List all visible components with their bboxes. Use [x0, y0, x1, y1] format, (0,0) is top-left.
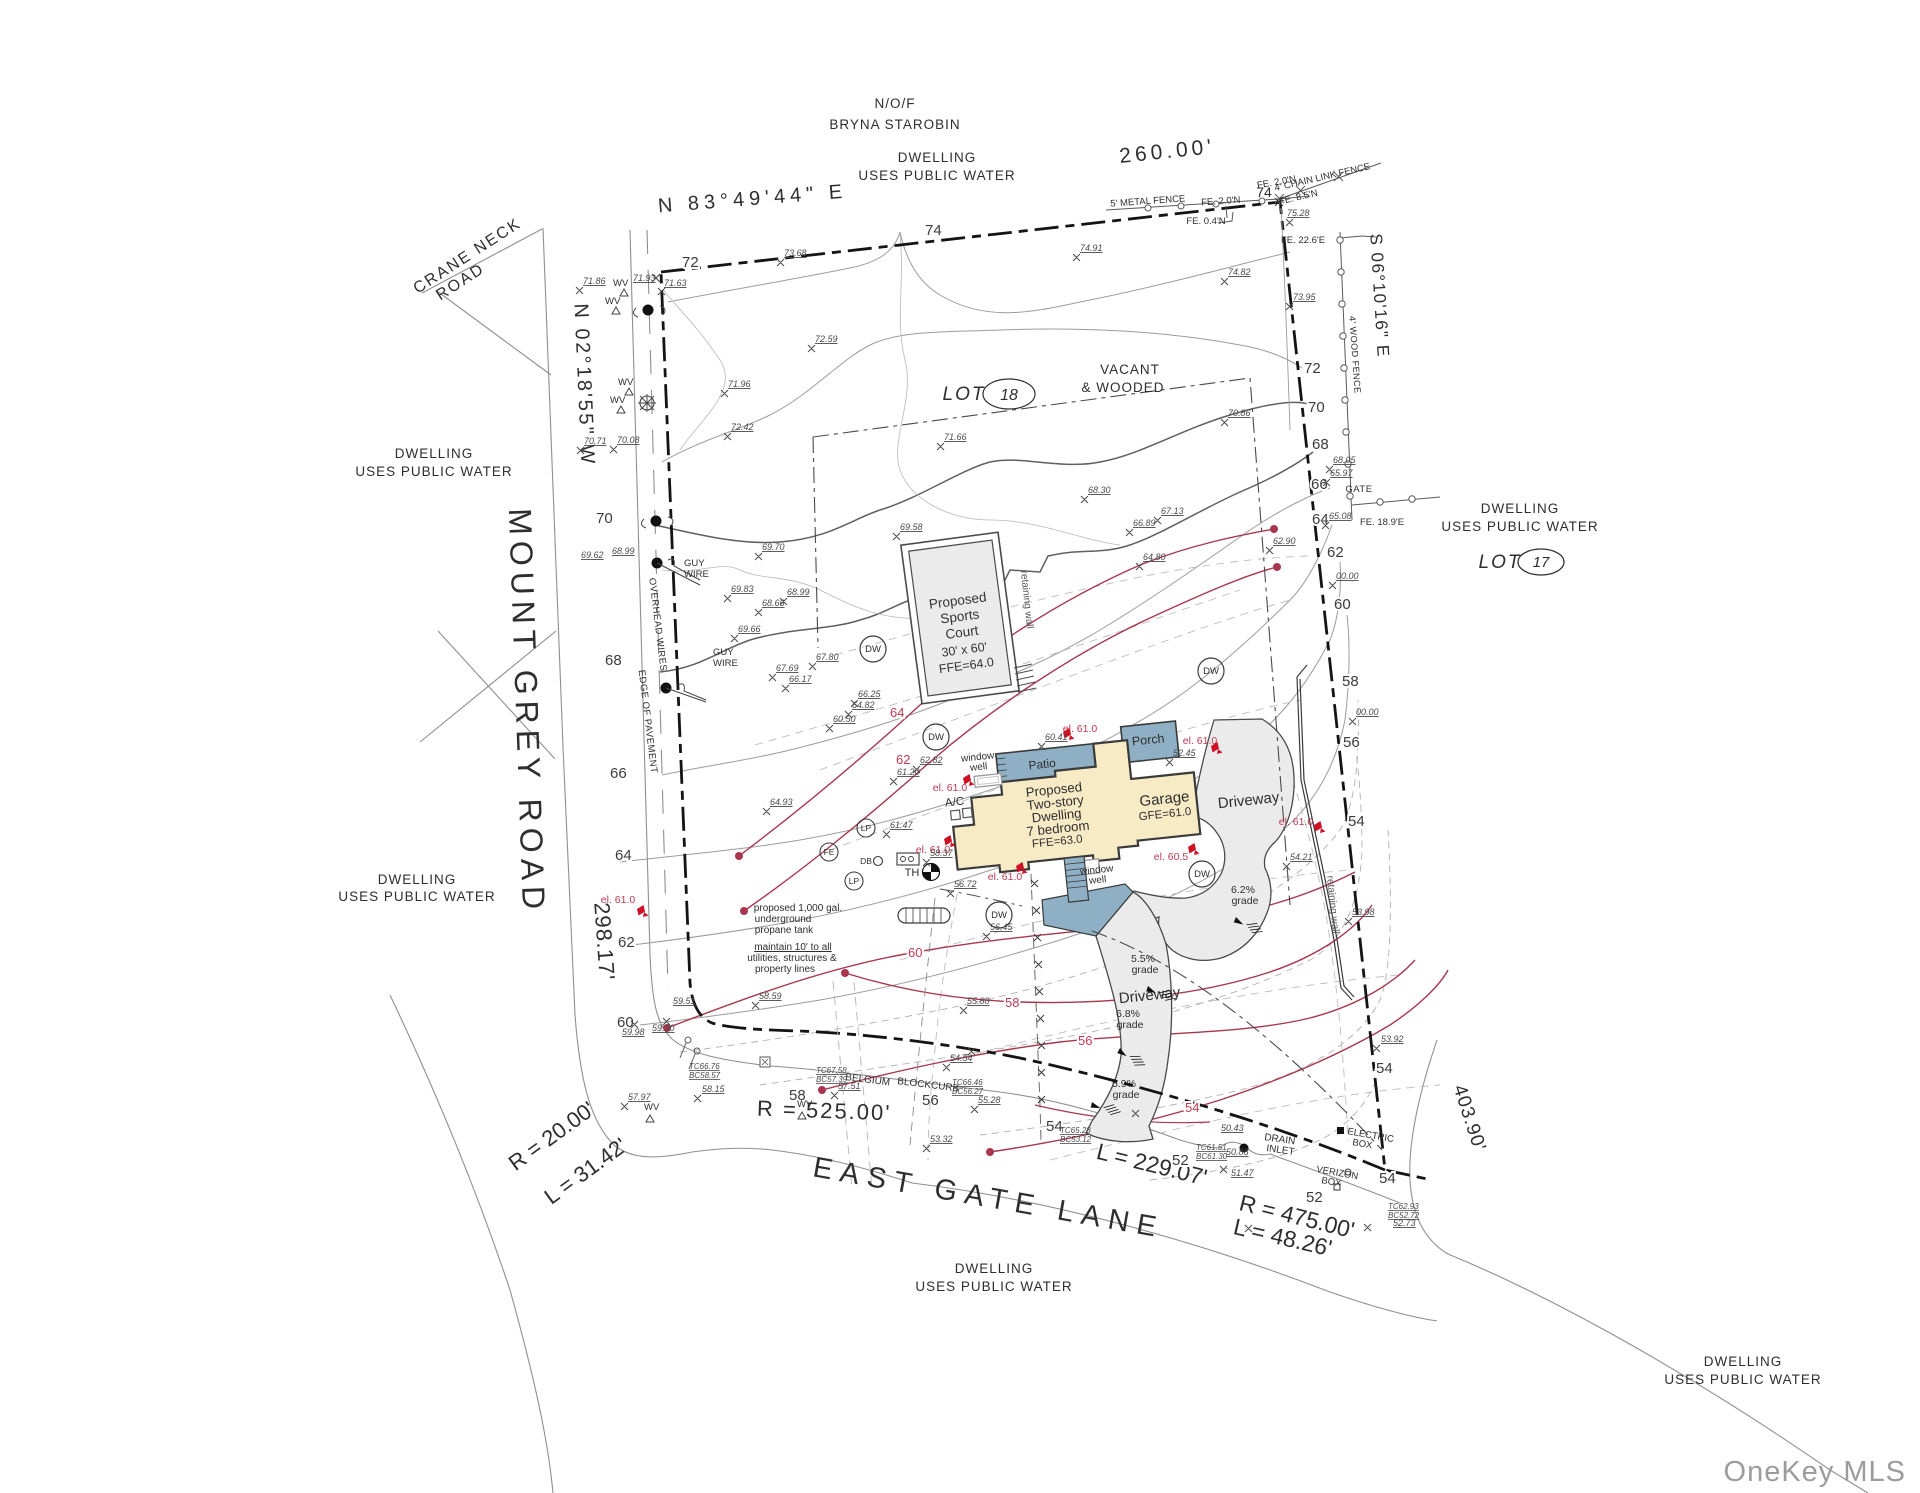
svg-text:53.92: 53.92 [1381, 1034, 1404, 1044]
svg-text:GATE: GATE [1345, 484, 1372, 495]
svg-text:TC66.46: TC66.46 [952, 1078, 983, 1087]
svg-text:grade: grade [1232, 895, 1259, 907]
svg-text:WV: WV [610, 395, 626, 406]
svg-text:64.93: 64.93 [770, 797, 793, 807]
svg-text:el. 61.0: el. 61.0 [988, 871, 1023, 883]
svg-text:USES PUBLIC WATER: USES PUBLIC WATER [338, 889, 495, 904]
svg-text:64: 64 [615, 847, 632, 864]
svg-text:LOT: LOT [1479, 552, 1522, 573]
svg-text:GUY: GUY [684, 558, 705, 569]
svg-text:FE: FE [824, 847, 835, 857]
svg-text:68.30: 68.30 [1088, 485, 1111, 495]
svg-text:USES PUBLIC WATER: USES PUBLIC WATER [915, 1279, 1072, 1294]
svg-text:62.90: 62.90 [1273, 536, 1296, 546]
svg-text:DWELLING: DWELLING [395, 446, 474, 461]
svg-text:58: 58 [789, 1087, 806, 1104]
svg-text:grade: grade [1113, 1089, 1140, 1101]
svg-text:60: 60 [908, 945, 922, 960]
svg-text:62: 62 [618, 934, 635, 951]
svg-text:68.99: 68.99 [612, 546, 635, 556]
svg-text:68.05: 68.05 [1333, 455, 1357, 465]
svg-text:58.59: 58.59 [759, 991, 782, 1001]
svg-text:el. 60.5: el. 60.5 [1154, 851, 1189, 863]
svg-text:DWELLING: DWELLING [955, 1261, 1034, 1276]
svg-text:58: 58 [1005, 995, 1019, 1010]
svg-text:72.59: 72.59 [815, 334, 838, 344]
svg-text:USES PUBLIC WATER: USES PUBLIC WATER [1664, 1372, 1821, 1387]
svg-text:FE. 0.4'N: FE. 0.4'N [1186, 216, 1225, 227]
svg-text:WV: WV [605, 296, 621, 307]
svg-text:71.66: 71.66 [944, 432, 967, 442]
svg-text:66.89: 66.89 [1133, 518, 1156, 528]
svg-text:65.08: 65.08 [1329, 511, 1352, 521]
svg-text:68: 68 [1312, 436, 1329, 453]
svg-text:DW: DW [865, 644, 881, 655]
svg-text:proposed 1,000 gal.: proposed 1,000 gal. [754, 903, 842, 914]
svg-text:18: 18 [1000, 387, 1018, 404]
svg-text:DW: DW [1203, 666, 1219, 677]
svg-text:TC67.58: TC67.58 [816, 1066, 847, 1075]
svg-text:R = 525.00': R = 525.00' [757, 1096, 892, 1126]
svg-text:66.17: 66.17 [789, 674, 813, 684]
svg-text:LOT: LOT [943, 384, 986, 405]
svg-text:FE. 22.6'E: FE. 22.6'E [1281, 235, 1325, 246]
svg-text:USES PUBLIC WATER: USES PUBLIC WATER [858, 168, 1015, 183]
svg-text:68: 68 [605, 652, 622, 669]
svg-text:well: well [969, 761, 988, 774]
svg-text:DWELLING: DWELLING [1481, 501, 1560, 516]
svg-text:51.47: 51.47 [1231, 1168, 1255, 1178]
svg-text:WIRE: WIRE [713, 658, 738, 669]
svg-text:58: 58 [1342, 673, 1359, 690]
svg-text:56: 56 [1343, 734, 1360, 751]
svg-text:69.70: 69.70 [762, 542, 785, 552]
svg-text:propane tank: propane tank [755, 925, 814, 936]
svg-text:A/C: A/C [945, 796, 965, 810]
svg-text:74.91: 74.91 [1080, 243, 1103, 253]
svg-text:70.71: 70.71 [584, 436, 607, 446]
svg-text:69.66: 69.66 [738, 624, 761, 634]
svg-text:73.68: 73.68 [784, 248, 807, 258]
svg-text:58.37: 58.37 [930, 848, 954, 858]
svg-text:TC62.93: TC62.93 [1388, 1202, 1419, 1211]
svg-text:70.08: 70.08 [617, 435, 640, 445]
svg-text:DW: DW [928, 732, 944, 743]
svg-text:WV: WV [618, 377, 634, 388]
svg-text:BC57.39: BC57.39 [816, 1075, 848, 1084]
svg-text:69.83: 69.83 [731, 584, 754, 594]
svg-text:LP: LP [861, 823, 872, 833]
svg-text:& WOODED: & WOODED [1081, 380, 1164, 395]
svg-text:55.28: 55.28 [978, 1095, 1001, 1105]
svg-text:maintain 10' to all: maintain 10' to all [754, 942, 832, 953]
svg-text:BC56.27: BC56.27 [952, 1087, 984, 1096]
svg-text:utilities, structures &: utilities, structures & [747, 953, 837, 964]
svg-text:USES PUBLIC WATER: USES PUBLIC WATER [355, 464, 512, 479]
svg-text:DB: DB [860, 856, 872, 866]
svg-text:property lines: property lines [755, 964, 815, 975]
svg-text:OneKey MLS: OneKey MLS [1724, 1456, 1906, 1488]
svg-text:TC65.28: TC65.28 [1060, 1126, 1091, 1135]
svg-text:GUY: GUY [713, 647, 734, 658]
svg-text:el. 61.0: el. 61.0 [1183, 735, 1218, 747]
svg-text:74: 74 [1256, 184, 1272, 200]
svg-text:well: well [1088, 874, 1107, 887]
svg-text:75.28: 75.28 [1287, 208, 1310, 218]
svg-text:72.42: 72.42 [731, 422, 754, 432]
svg-text:LP: LP [849, 876, 860, 886]
svg-text:BRYNA STAROBIN: BRYNA STAROBIN [829, 117, 960, 132]
svg-text:DWELLING: DWELLING [378, 872, 457, 887]
svg-text:BC52.72: BC52.72 [1388, 1211, 1420, 1220]
svg-text:54.21: 54.21 [1290, 852, 1313, 862]
svg-text:DWELLING: DWELLING [1704, 1354, 1783, 1369]
svg-text:72: 72 [1304, 360, 1321, 377]
svg-text:72: 72 [682, 254, 699, 271]
svg-text:56: 56 [1078, 1033, 1092, 1048]
svg-text:17: 17 [1533, 554, 1550, 571]
svg-text:69.58: 69.58 [900, 522, 923, 532]
svg-text:60.50: 60.50 [833, 714, 856, 724]
svg-text:DWELLING: DWELLING [898, 150, 977, 165]
svg-text:50.43: 50.43 [1221, 1123, 1244, 1133]
svg-text:grade: grade [1132, 964, 1159, 976]
svg-text:N/O/F: N/O/F [875, 96, 916, 111]
svg-text:71.86: 71.86 [583, 276, 606, 286]
svg-text:62: 62 [1327, 544, 1344, 561]
svg-text:64: 64 [890, 705, 904, 720]
svg-text:62.82: 62.82 [920, 755, 943, 765]
svg-text:USES PUBLIC WATER: USES PUBLIC WATER [1441, 519, 1598, 534]
svg-text:DW: DW [1194, 869, 1210, 880]
svg-text:73.95: 73.95 [1293, 292, 1317, 302]
svg-text:60.41: 60.41 [1045, 732, 1068, 742]
svg-text:61.47: 61.47 [890, 820, 914, 830]
svg-text:TC66.76: TC66.76 [689, 1062, 720, 1071]
svg-text:71.96: 71.96 [728, 379, 751, 389]
svg-text:Patio: Patio [1028, 756, 1057, 773]
svg-text:53.32: 53.32 [930, 1134, 953, 1144]
svg-text:58.15: 58.15 [702, 1084, 726, 1094]
svg-text:00.00: 00.00 [1336, 571, 1359, 581]
svg-text:VACANT: VACANT [1100, 362, 1160, 377]
svg-text:underground: underground [755, 914, 812, 925]
svg-text:64.80: 64.80 [1143, 552, 1166, 562]
svg-text:71.93: 71.93 [633, 273, 656, 283]
svg-text:el. 61.0: el. 61.0 [1279, 816, 1314, 828]
svg-text:71.63: 71.63 [664, 278, 687, 288]
svg-text:WV: WV [613, 278, 629, 289]
svg-text:57.97: 57.97 [628, 1092, 652, 1102]
svg-text:53.98: 53.98 [1352, 907, 1375, 917]
svg-text:52.45: 52.45 [1173, 748, 1197, 758]
svg-text:74.82: 74.82 [1228, 267, 1251, 277]
svg-text:69.62: 69.62 [581, 550, 604, 560]
svg-text:59.51: 59.51 [673, 996, 696, 1006]
svg-text:54: 54 [1348, 813, 1365, 830]
svg-text:68.99: 68.99 [787, 587, 810, 597]
svg-text:56.72: 56.72 [954, 879, 977, 889]
svg-text:62: 62 [896, 752, 910, 767]
svg-text:TC61.51: TC61.51 [1196, 1143, 1227, 1152]
svg-text:50.86: 50.86 [1226, 1147, 1249, 1157]
svg-text:52: 52 [1172, 1152, 1189, 1169]
svg-text:WIRE: WIRE [684, 569, 709, 580]
svg-text:59.98: 59.98 [622, 1027, 645, 1037]
svg-text:66.25: 66.25 [858, 689, 882, 699]
svg-text:WV: WV [644, 1102, 660, 1113]
svg-text:BC53.12: BC53.12 [1060, 1135, 1092, 1144]
svg-text:00.00: 00.00 [1356, 707, 1379, 717]
svg-text:67.80: 67.80 [816, 652, 839, 662]
svg-text:DW: DW [991, 910, 1007, 921]
svg-text:BC61.30: BC61.30 [1196, 1152, 1228, 1161]
svg-text:54: 54 [1379, 1170, 1396, 1187]
svg-text:70.86: 70.86 [1228, 408, 1251, 418]
svg-text:55.88: 55.88 [967, 996, 990, 1006]
svg-text:FE. 18.9'E: FE. 18.9'E [1360, 517, 1404, 528]
svg-text:70: 70 [1308, 399, 1325, 416]
svg-text:66: 66 [610, 765, 627, 782]
svg-text:el. 61.0: el. 61.0 [933, 782, 968, 794]
svg-text:56: 56 [922, 1092, 939, 1109]
svg-text:54: 54 [1185, 1100, 1199, 1115]
svg-text:74: 74 [925, 222, 942, 239]
svg-text:BC58.57: BC58.57 [689, 1071, 721, 1080]
svg-text:60: 60 [1334, 596, 1351, 613]
svg-text:54: 54 [1376, 1060, 1393, 1077]
svg-text:67.69: 67.69 [776, 663, 799, 673]
svg-text:67.13: 67.13 [1161, 506, 1184, 516]
svg-text:65.97: 65.97 [1330, 468, 1354, 478]
svg-text:grade: grade [1117, 1019, 1144, 1031]
svg-text:56.45: 56.45 [990, 922, 1014, 932]
svg-text:70: 70 [596, 510, 613, 527]
svg-text:52: 52 [1306, 1189, 1323, 1206]
svg-text:TH: TH [905, 867, 920, 879]
